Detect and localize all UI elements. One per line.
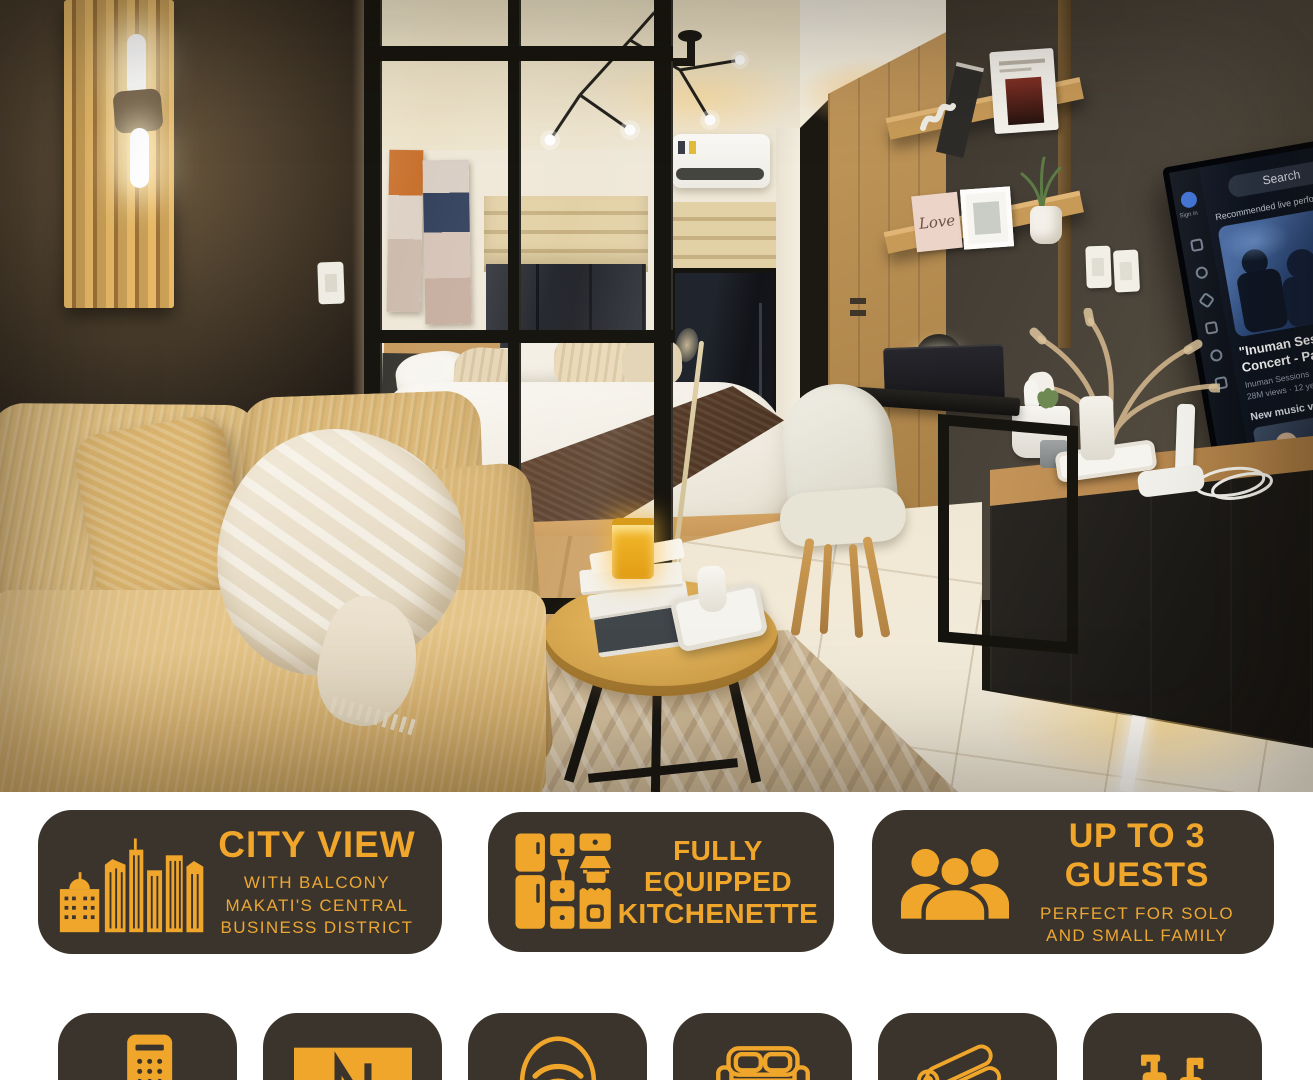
box-text-bar: [999, 58, 1045, 65]
kitchenette-icon: [512, 830, 616, 934]
netflix-icon: [294, 1047, 412, 1080]
chair-seat: [778, 486, 907, 549]
pampas-vase: [1079, 395, 1115, 460]
air-conditioner: [672, 134, 770, 188]
badge-title-line: KITCHENETTE: [616, 898, 820, 929]
shelf-display-box: [989, 48, 1059, 134]
badge-subtitle-line: BUSINESS DISTRICT: [208, 917, 426, 939]
badge-title-line: FULLY EQUIPPED: [616, 835, 820, 898]
wifi-icon: [516, 1033, 600, 1080]
box-image: [1005, 77, 1044, 125]
shelf-squiggle-decor: [920, 98, 956, 136]
toiletries-icon: [1125, 1037, 1221, 1080]
badge-guests: UP TO 3 GUESTS PERFECT FOR SOLO AND SMAL…: [872, 810, 1274, 954]
partition-frame-vertical: [654, 0, 673, 616]
sofa-bed-icon: [708, 1039, 818, 1080]
badge-netflix: [263, 1013, 442, 1080]
roman-shade-right: [668, 202, 788, 276]
badge-kitchenette: FULLY EQUIPPED KITCHENETTE: [488, 812, 834, 952]
ac-sticker-dark: [678, 141, 685, 154]
three-guests-icon: [894, 839, 1016, 925]
badge-title: UP TO 3 GUESTS: [1016, 817, 1258, 895]
badge-subtitle-line: WITH BALCONY: [208, 872, 426, 894]
desk-leg-frame: [938, 414, 1078, 654]
badge-city-view: CITY VIEW WITH BALCONY MAKATI'S CENTRAL …: [38, 810, 442, 954]
ac-sticker-yellow: [689, 141, 696, 154]
shelf-plant-vase: [1030, 206, 1062, 244]
box-text-bar: [999, 67, 1031, 72]
succulent-plant: [1036, 386, 1062, 410]
shelf-photo-frame: [960, 186, 1014, 249]
light-switch-plate: [317, 262, 344, 305]
ac-vent: [676, 168, 764, 180]
light-switch-plate: [1113, 249, 1140, 292]
switch-rocker: [325, 274, 338, 292]
wardrobe-handle: [850, 298, 866, 304]
towels-icon: [910, 1043, 1026, 1080]
badge-subtitle-line: AND SMALL FAMILY: [1016, 925, 1258, 947]
love-card-text: Love: [918, 211, 956, 233]
partition-frame-rail: [362, 46, 673, 61]
sconce-bulb-up: [127, 34, 146, 96]
tray-vase: [696, 565, 727, 613]
badge-towels: [878, 1013, 1057, 1080]
sconce-bulb-down: [130, 128, 149, 188]
light-switch-plate: [1085, 246, 1111, 289]
slat-panel-glow: [64, 0, 174, 308]
badge-toiletries: [1083, 1013, 1262, 1080]
badge-wifi: [468, 1013, 647, 1080]
badge-subtitle-line: MAKATI'S CENTRAL: [208, 895, 426, 917]
badge-subtitle-line: PERFECT FOR SOLO: [1016, 903, 1258, 925]
wardrobe-handle: [850, 310, 866, 316]
frame-mat: [973, 201, 1001, 235]
switch-rocker: [1120, 262, 1133, 281]
city-skyline-icon: [58, 830, 208, 935]
apartment-photo: Love Sign in: [0, 0, 1313, 792]
partition-frame-rail: [362, 330, 673, 343]
badge-title: CITY VIEW: [208, 824, 426, 866]
listing-promo-page: Love Sign in: [0, 0, 1313, 1080]
switch-rocker: [1092, 258, 1105, 276]
door-lock-icon: [102, 1033, 194, 1080]
badge-door-lock: [58, 1013, 237, 1080]
candle: [612, 518, 654, 579]
router-cable: [1190, 458, 1280, 504]
badge-sofa-bed: [673, 1013, 852, 1080]
shelf-love-card: Love: [911, 192, 963, 253]
